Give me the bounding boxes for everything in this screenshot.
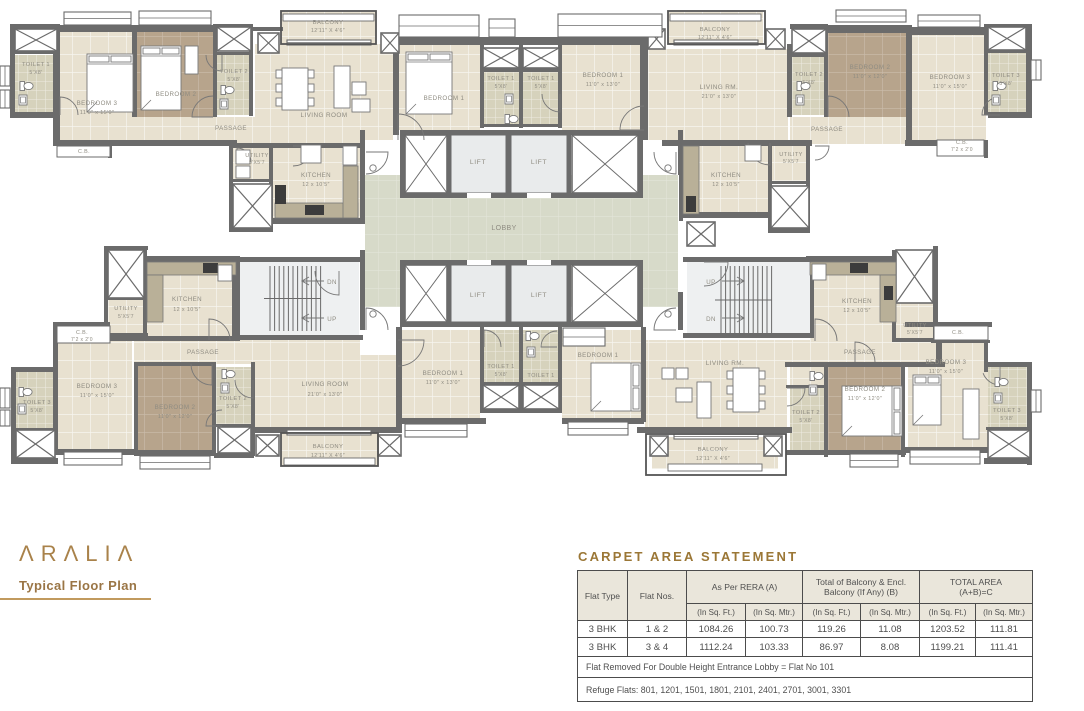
- svg-text:LIVING RM.: LIVING RM.: [700, 84, 738, 91]
- svg-text:BEDROOM 2: BEDROOM 2: [155, 404, 196, 411]
- svg-text:TOILET 2: TOILET 2: [219, 396, 247, 402]
- svg-text:TOILET 3: TOILET 3: [993, 408, 1021, 414]
- svg-text:BEDROOM 3: BEDROOM 3: [930, 74, 971, 81]
- svg-text:11′0″ x 13′0″: 11′0″ x 13′0″: [586, 82, 620, 88]
- svg-text:BEDROOM 1: BEDROOM 1: [424, 95, 465, 102]
- svg-text:5'X5'7: 5'X5'7: [249, 160, 265, 166]
- svg-text:5'X8': 5'X8': [495, 372, 508, 378]
- svg-text:LIFT: LIFT: [531, 292, 547, 299]
- svg-text:LIFT: LIFT: [470, 292, 486, 299]
- svg-text:12′11″ X 4′6″: 12′11″ X 4′6″: [311, 453, 345, 459]
- svg-text:5'X8': 5'X8': [495, 84, 508, 90]
- svg-text:12 x 10′5″: 12 x 10′5″: [712, 182, 740, 188]
- svg-text:5'X8': 5'X8': [1000, 416, 1013, 422]
- svg-text:5'X8': 5'X8': [227, 77, 240, 83]
- svg-text:5'X5'7: 5'X5'7: [907, 330, 923, 336]
- svg-text:UTILITY: UTILITY: [114, 306, 138, 312]
- svg-text:5'X8': 5'X8': [535, 84, 548, 90]
- svg-text:C.B.: C.B.: [956, 140, 968, 146]
- svg-text:TOILET 1: TOILET 1: [22, 62, 50, 68]
- svg-text:BALCONY: BALCONY: [313, 20, 344, 26]
- svg-text:BEDROOM 1: BEDROOM 1: [583, 72, 624, 79]
- svg-text:TOILET 3: TOILET 3: [23, 400, 51, 406]
- svg-text:BEDROOM 3: BEDROOM 3: [77, 383, 118, 390]
- svg-text:LOBBY: LOBBY: [491, 225, 516, 232]
- svg-text:BALCONY: BALCONY: [313, 444, 344, 450]
- svg-text:TOILET 2: TOILET 2: [792, 410, 820, 416]
- svg-text:LIVING ROOM: LIVING ROOM: [300, 112, 347, 119]
- svg-text:7'2 x 2'0: 7'2 x 2'0: [71, 337, 93, 343]
- svg-text:5'X5'7: 5'X5'7: [118, 314, 134, 320]
- svg-text:BEDROOM 3: BEDROOM 3: [926, 359, 967, 366]
- svg-text:C.B.: C.B.: [76, 330, 88, 336]
- svg-text:TOILET 1: TOILET 1: [527, 373, 554, 379]
- svg-text:DN: DN: [327, 279, 337, 286]
- svg-text:LIVING RM.: LIVING RM.: [706, 360, 744, 367]
- svg-text:KITCHEN: KITCHEN: [172, 296, 202, 303]
- svg-text:BALCONY: BALCONY: [698, 447, 729, 453]
- svg-text:PASSAGE: PASSAGE: [215, 125, 247, 132]
- svg-text:12 x 10′5″: 12 x 10′5″: [843, 308, 871, 314]
- svg-text:BEDROOM 2: BEDROOM 2: [156, 91, 197, 98]
- svg-text:PASSAGE: PASSAGE: [811, 126, 843, 133]
- svg-text:5'X8': 5'X8': [999, 81, 1012, 87]
- svg-text:BEDROOM 1: BEDROOM 1: [578, 352, 619, 359]
- svg-text:11′0″ x 15′0″: 11′0″ x 15′0″: [80, 110, 114, 116]
- svg-text:C.B.: C.B.: [952, 330, 964, 336]
- svg-text:5'X8': 5'X8': [226, 404, 239, 410]
- svg-text:UP: UP: [327, 316, 336, 323]
- svg-text:BALCONY: BALCONY: [700, 27, 731, 33]
- svg-text:BEDROOM 3: BEDROOM 3: [77, 100, 118, 107]
- svg-text:TOILET 3: TOILET 3: [992, 73, 1020, 79]
- svg-text:11′0″ x 12′0″: 11′0″ x 12′0″: [853, 74, 887, 80]
- svg-text:TOILET 1: TOILET 1: [487, 364, 514, 370]
- svg-text:KITCHEN: KITCHEN: [711, 172, 741, 179]
- svg-text:7'2 x 2'0: 7'2 x 2'0: [951, 147, 973, 153]
- svg-text:PASSAGE: PASSAGE: [187, 349, 219, 356]
- svg-text:LIFT: LIFT: [470, 159, 486, 166]
- svg-text:TOILET 2: TOILET 2: [220, 69, 248, 75]
- svg-text:21′0″ x 13′0″: 21′0″ x 13′0″: [308, 392, 343, 398]
- svg-text:12 x 10′5″: 12 x 10′5″: [173, 307, 201, 313]
- svg-text:5'X5'7: 5'X5'7: [783, 159, 799, 165]
- svg-text:LIFT: LIFT: [531, 159, 547, 166]
- svg-text:LIVING ROOM: LIVING ROOM: [301, 381, 348, 388]
- svg-text:BEDROOM 2: BEDROOM 2: [850, 64, 891, 71]
- svg-text:KITCHEN: KITCHEN: [301, 172, 331, 179]
- svg-text:12′11″ X 4′6″: 12′11″ X 4′6″: [696, 456, 730, 462]
- svg-text:5'X8': 5'X8': [30, 408, 43, 414]
- svg-text:C.B.: C.B.: [78, 149, 90, 155]
- svg-text:11′0″ x 12′0″: 11′0″ x 12′0″: [158, 414, 192, 420]
- svg-text:TOILET 2: TOILET 2: [795, 72, 823, 78]
- svg-text:11′0″ x 15′0″: 11′0″ x 15′0″: [80, 393, 114, 399]
- svg-text:12′11″ X 4′6″: 12′11″ X 4′6″: [698, 35, 732, 41]
- svg-text:TOILET 1: TOILET 1: [527, 76, 554, 82]
- svg-text:5'X8': 5'X8': [799, 418, 812, 424]
- svg-text:TOILET 1: TOILET 1: [487, 76, 514, 82]
- svg-text:12′11″ X 4′6″: 12′11″ X 4′6″: [311, 28, 345, 34]
- svg-text:BEDROOM 1: BEDROOM 1: [423, 370, 464, 377]
- svg-text:UTILITY: UTILITY: [779, 152, 803, 158]
- svg-text:11′0″ x 12′0″: 11′0″ x 12′0″: [848, 396, 882, 402]
- svg-text:KITCHEN: KITCHEN: [842, 298, 872, 305]
- svg-text:UTILITY: UTILITY: [903, 323, 927, 329]
- svg-text:21′0″ x 13′0″: 21′0″ x 13′0″: [702, 94, 737, 100]
- svg-text:UTILITY: UTILITY: [245, 153, 269, 159]
- svg-text:5'X8': 5'X8': [29, 70, 42, 76]
- svg-text:BEDROOM 2: BEDROOM 2: [845, 386, 886, 393]
- svg-text:DN: DN: [706, 316, 716, 323]
- svg-text:12 x 10′5″: 12 x 10′5″: [302, 182, 330, 188]
- svg-text:5'X8': 5'X8': [802, 80, 815, 86]
- svg-text:11′0″ x 13′0″: 11′0″ x 13′0″: [426, 380, 460, 386]
- svg-text:11′0″ x 15′0″: 11′0″ x 15′0″: [933, 84, 967, 90]
- svg-text:PASSAGE: PASSAGE: [844, 349, 876, 356]
- svg-text:11′0″ x 15′0″: 11′0″ x 15′0″: [929, 369, 963, 375]
